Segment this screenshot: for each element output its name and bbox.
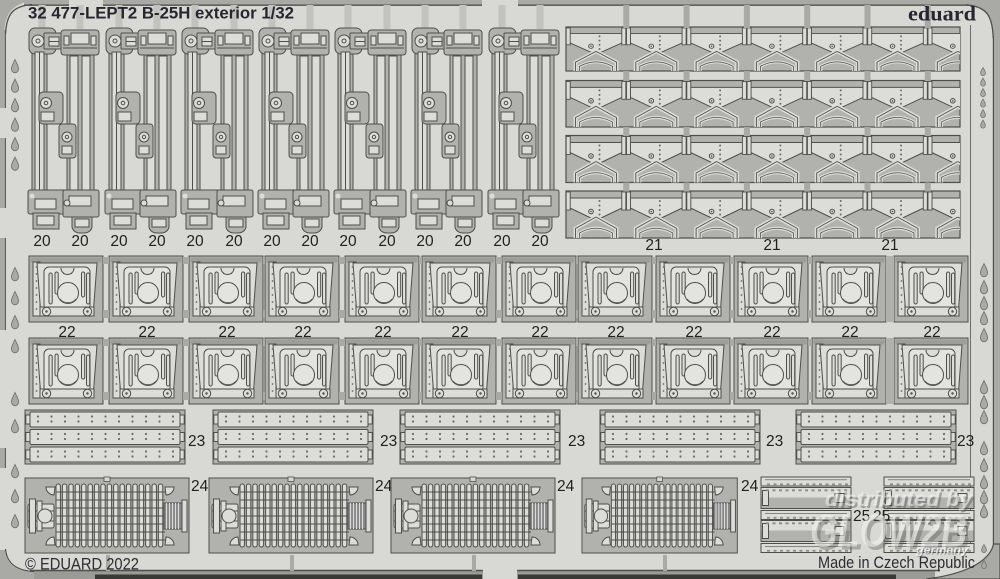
svg-text:20: 20 [33,233,51,250]
svg-text:20: 20 [339,233,357,250]
svg-text:© EDUARD 2022: © EDUARD 2022 [25,555,139,574]
svg-text:32 477-LEPT2 B-25H exterior 1/: 32 477-LEPT2 B-25H exterior 1/32 [28,5,294,23]
svg-text:20: 20 [225,233,243,250]
svg-text:21: 21 [645,237,662,254]
svg-text:20: 20 [416,233,434,250]
svg-text:23: 23 [766,433,783,450]
svg-text:20: 20 [71,233,89,250]
svg-text:20: 20 [186,233,204,250]
svg-text:23: 23 [957,433,974,450]
svg-text:20: 20 [110,233,128,250]
svg-text:21: 21 [881,237,898,254]
svg-text:20: 20 [263,233,281,250]
svg-text:24: 24 [191,478,209,495]
svg-text:20: 20 [301,233,319,250]
svg-text:20: 20 [148,233,166,250]
svg-text:Made in Czech Republic: Made in Czech Republic [818,553,975,572]
svg-text:24: 24 [557,478,575,495]
svg-text:20: 20 [493,233,511,250]
svg-text:23: 23 [380,433,397,450]
svg-text:20: 20 [378,233,396,250]
svg-text:24: 24 [375,478,393,495]
svg-text:21: 21 [763,237,780,254]
svg-text:20: 20 [454,233,472,250]
svg-text:20: 20 [531,233,549,250]
svg-text:23: 23 [188,433,205,450]
svg-text:eduard: eduard [908,2,976,26]
svg-text:24: 24 [741,478,759,495]
svg-text:23: 23 [568,433,585,450]
